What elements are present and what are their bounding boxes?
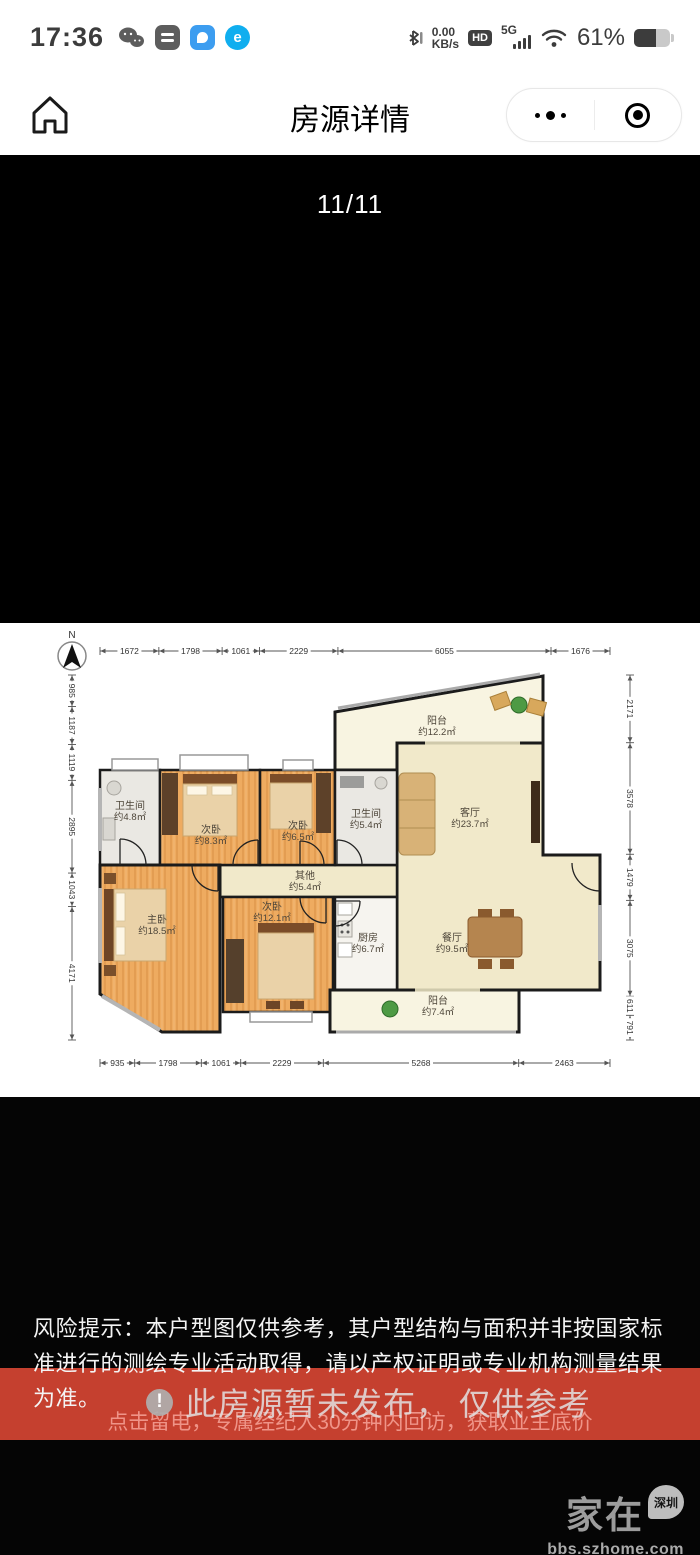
wechat-icon <box>118 26 145 50</box>
svg-text:约12.1㎡: 约12.1㎡ <box>253 912 291 924</box>
svg-text:约18.5㎡: 约18.5㎡ <box>138 925 176 937</box>
svg-text:约23.7㎡: 约23.7㎡ <box>451 818 489 830</box>
battery-percent: 61% <box>577 24 625 52</box>
svg-text:6055: 6055 <box>435 646 454 656</box>
bluetooth-icon <box>407 25 423 51</box>
svg-text:2229: 2229 <box>273 1058 292 1068</box>
photo-gallery[interactable]: 11/11 <box>0 155 700 623</box>
health-app-icon <box>190 25 215 50</box>
wifi-icon <box>540 26 568 50</box>
svg-text:5268: 5268 <box>412 1058 431 1068</box>
label-balcony-bottom: 阳台 <box>428 994 448 1007</box>
label-bed-121: 次卧 <box>262 900 282 913</box>
label-balcony-top: 阳台 <box>427 714 447 727</box>
svg-text:791: 791 <box>625 1021 635 1035</box>
label-bath-54: 卫生间 <box>351 807 381 820</box>
compass-label: N <box>68 630 75 641</box>
label-kitchen: 厨房 <box>358 931 378 944</box>
label-bed-65: 次卧 <box>288 819 308 832</box>
watermark-site: bbs.szhome.com <box>547 1541 684 1555</box>
floorplan-image[interactable]: N <box>0 623 700 1097</box>
nav-bar: 房源详情 <box>0 75 700 155</box>
svg-text:约6.5㎡: 约6.5㎡ <box>282 831 315 843</box>
svg-text:985: 985 <box>67 684 77 698</box>
svg-text:4171: 4171 <box>67 964 77 983</box>
target-icon <box>625 103 650 128</box>
more-icon <box>535 113 540 118</box>
svg-text:2463: 2463 <box>555 1058 574 1068</box>
more-button[interactable] <box>507 89 594 141</box>
svg-text:1043: 1043 <box>67 880 77 899</box>
svg-text:2171: 2171 <box>625 699 635 718</box>
notification-icons: e <box>118 25 250 50</box>
svg-text:约5.4㎡: 约5.4㎡ <box>350 819 383 831</box>
close-button[interactable] <box>595 89 682 141</box>
watermark-badge: 深圳 <box>648 1485 684 1519</box>
svg-text:1061: 1061 <box>231 646 250 656</box>
dims-bottom: 93517981061222952682463 <box>100 1058 610 1069</box>
watermark: 家在 深圳 bbs.szhome.com <box>547 1485 684 1555</box>
svg-text:1479: 1479 <box>625 868 635 887</box>
svg-text:2229: 2229 <box>289 646 308 656</box>
label-master: 主卧 <box>147 913 167 926</box>
label-bed-83: 次卧 <box>201 823 221 836</box>
svg-text:2895: 2895 <box>67 817 77 836</box>
compass-icon: N <box>58 630 86 670</box>
battery-icon <box>634 29 670 47</box>
svg-text:1061: 1061 <box>212 1058 231 1068</box>
dims-right: 2171357814793075611791 <box>625 675 636 1040</box>
info-icon: ! <box>146 1389 173 1416</box>
svg-text:3075: 3075 <box>625 939 635 958</box>
label-living: 客厅 <box>460 806 480 819</box>
hd-badge: HD <box>468 30 492 46</box>
dims-top: 167217981061222960551676 <box>100 646 610 657</box>
svg-text:1676: 1676 <box>571 646 590 656</box>
svg-text:1672: 1672 <box>120 646 139 656</box>
svg-text:约12.2㎡: 约12.2㎡ <box>418 726 456 738</box>
network-speed: 0.00 KB/s <box>432 26 459 50</box>
dims-left: 98511871119289510434171 <box>67 675 78 1040</box>
app-screen: 17:36 e 0.00 KB/s HD <box>0 0 700 1555</box>
unpublished-notice: ! 此房源暂未发布， 仅供参考 <box>146 1379 591 1425</box>
label-dining: 餐厅 <box>442 931 462 944</box>
signal-icon: 5G <box>501 25 531 51</box>
floorplan-svg: N <box>0 623 700 1097</box>
svg-text:1798: 1798 <box>159 1058 178 1068</box>
svg-text:约5.4㎡: 约5.4㎡ <box>289 881 322 893</box>
svg-text:约7.4㎡: 约7.4㎡ <box>422 1006 455 1018</box>
svg-text:约4.8㎡: 约4.8㎡ <box>114 811 147 823</box>
card-reader-icon <box>155 25 180 50</box>
system-status-icons: 0.00 KB/s HD 5G 61% <box>407 24 670 52</box>
svg-text:1119: 1119 <box>67 754 77 772</box>
svg-text:约8.3㎡: 约8.3㎡ <box>195 835 228 847</box>
svg-text:611: 611 <box>625 999 635 1013</box>
svg-text:1798: 1798 <box>181 646 200 656</box>
svg-text:1187: 1187 <box>67 716 77 735</box>
notice-text: 此房源暂未发布， 仅供参考 <box>185 1379 591 1425</box>
clock: 17:36 <box>30 22 104 53</box>
svg-text:约9.5㎡: 约9.5㎡ <box>436 943 469 955</box>
label-bath-48: 卫生间 <box>115 799 145 812</box>
e-app-letter: e <box>233 29 241 46</box>
bottom-section: 点击留电，专属经纪人30分钟内回访，获取业主底价 风险提示：本户型图仅供参考，其… <box>0 1097 700 1555</box>
svg-text:935: 935 <box>110 1058 124 1068</box>
status-bar: 17:36 e 0.00 KB/s HD <box>0 0 700 75</box>
photo-counter: 11/11 <box>0 189 700 220</box>
label-hall: 其他 <box>295 869 315 882</box>
svg-text:约6.7㎡: 约6.7㎡ <box>352 943 385 955</box>
svg-text:3578: 3578 <box>625 789 635 808</box>
miniprogram-capsule <box>506 88 682 142</box>
e-app-icon: e <box>225 25 250 50</box>
watermark-brand: 家在 <box>566 1485 644 1539</box>
